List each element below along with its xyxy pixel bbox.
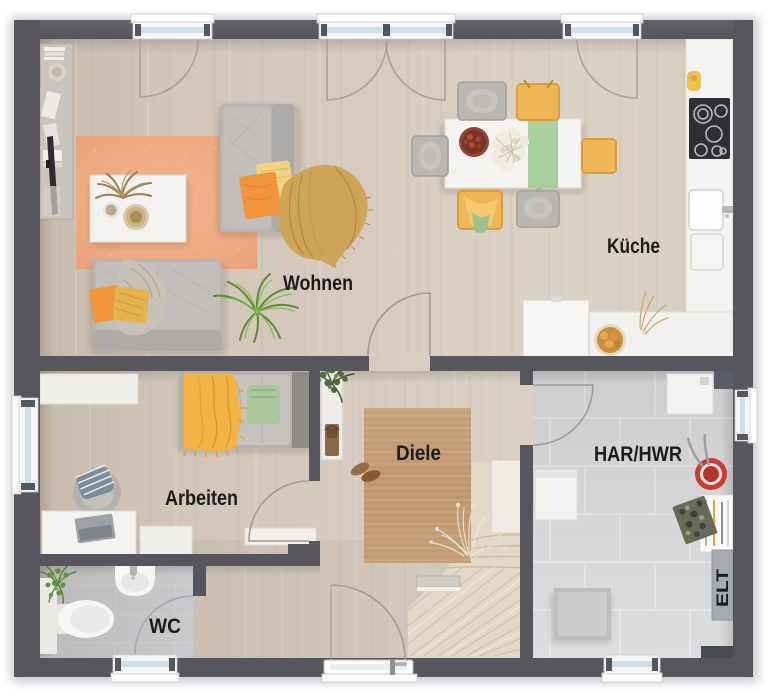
svg-text:HAR/HWR: HAR/HWR bbox=[594, 443, 682, 466]
svg-text:Diele: Diele bbox=[396, 442, 441, 465]
svg-text:ELT: ELT bbox=[713, 568, 732, 607]
svg-text:Küche: Küche bbox=[607, 235, 660, 258]
svg-text:WC: WC bbox=[149, 615, 181, 638]
svg-text:Wohnen: Wohnen bbox=[283, 272, 353, 295]
svg-text:Arbeiten: Arbeiten bbox=[165, 487, 238, 510]
